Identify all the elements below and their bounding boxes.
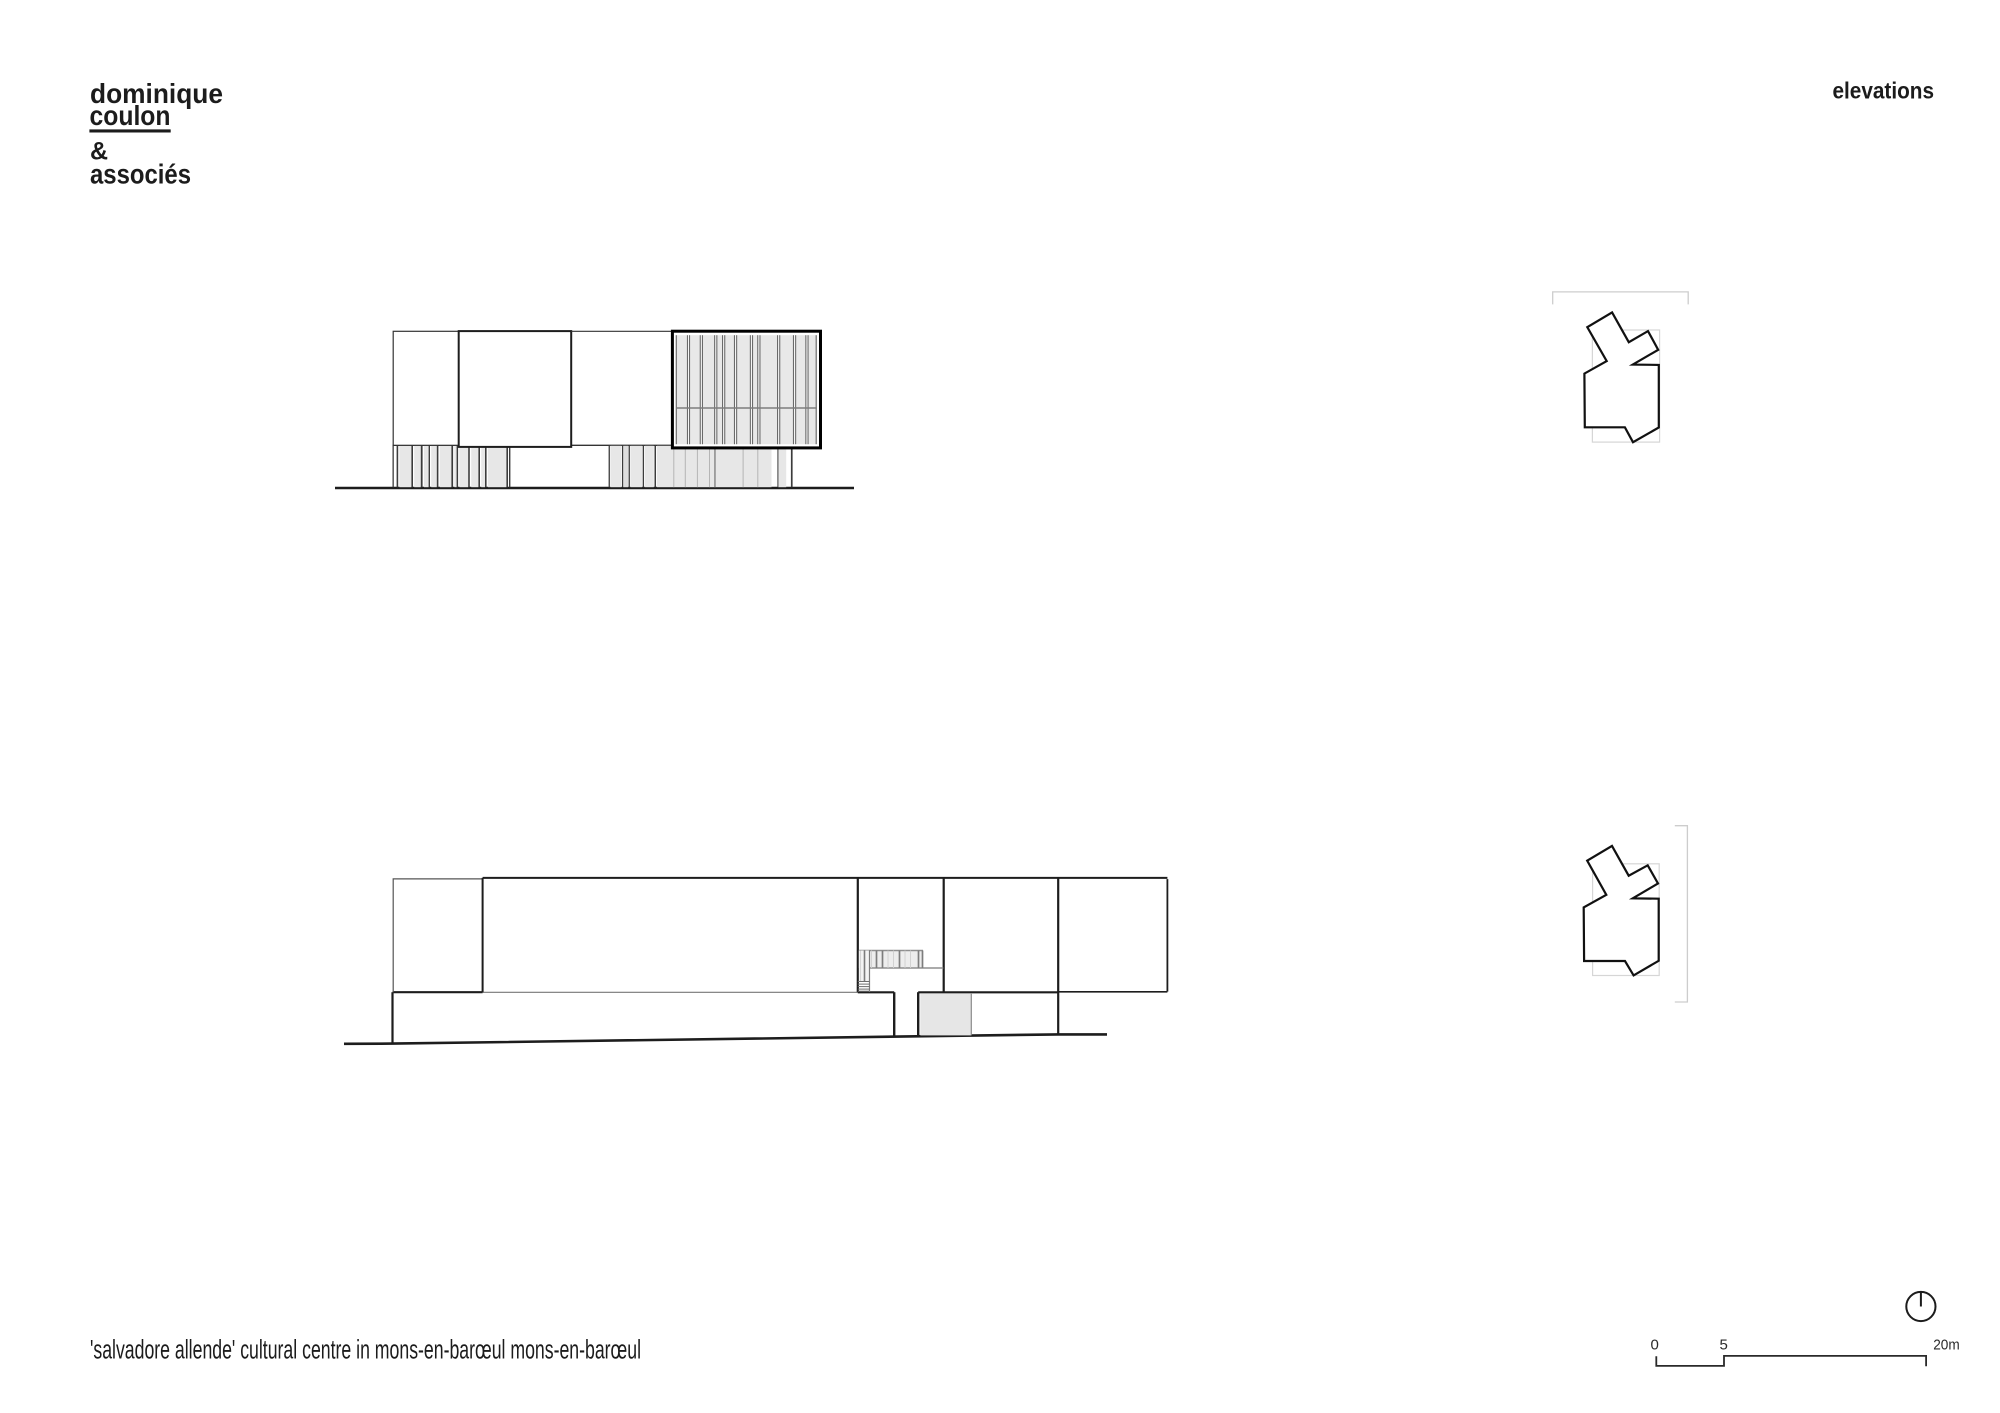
svg-text:elevations: elevations [1833, 78, 1935, 104]
svg-text:0: 0 [1651, 1337, 1659, 1354]
svg-text:'salvadore allende' cultural c: 'salvadore allende' cultural centre in m… [90, 1334, 641, 1364]
svg-text:5: 5 [1720, 1337, 1728, 1354]
svg-text:20m: 20m [1933, 1337, 1960, 1354]
svg-text:coulon: coulon [90, 100, 171, 131]
svg-text:associés: associés [90, 159, 191, 190]
